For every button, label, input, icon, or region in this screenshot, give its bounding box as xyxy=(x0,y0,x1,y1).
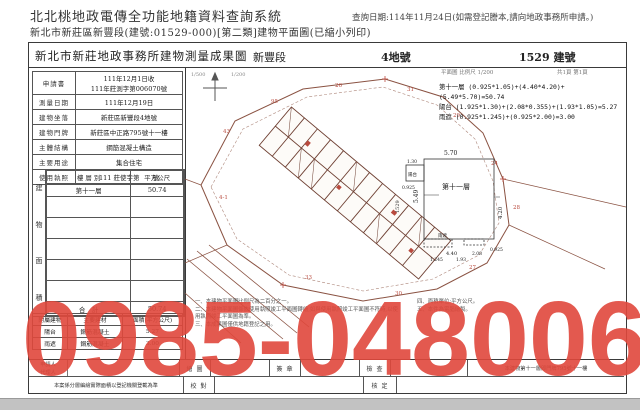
detail-building-no: 1529 xyxy=(395,200,401,213)
scale-label: 1/500 xyxy=(191,72,205,78)
formula-line: 陽台 (1.925*1.30)+(2.08*0.355)+(1.93*1.05)… xyxy=(439,103,625,113)
dim-left: 5.49 xyxy=(413,189,420,203)
dim-w3: 2.08 xyxy=(472,251,482,257)
system-title: 北北桃地政電傳全功能地籍資料查詢系統 xyxy=(30,6,282,25)
formula-line: 雨遮 (0.925*1.245)+(0.925*2.00)=3.00 xyxy=(439,113,625,123)
document-subtitle: 新北市新莊區新豐段(建號:01529-000)[第二類]建物平面圖(已縮小列印) xyxy=(30,24,371,39)
north-arrow-icon xyxy=(203,73,227,101)
dim-w4: 1.245 xyxy=(430,257,443,263)
parcel-number: 4地號 xyxy=(381,49,411,65)
query-date: 查詢日期:114年11月24日(如需登記謄本,請向地政事務所申請。) xyxy=(352,11,593,23)
canopy-label: 雨遮 xyxy=(438,232,447,239)
unit-detail-plan: 5.70 5.49 4.20 第十一層 1.30 陽台 0.925 雨遮 4.4… xyxy=(394,139,524,267)
info-field-table: 申請書 111年12月1日收111年莊測字第006070號 測量日期 111年1… xyxy=(32,71,183,185)
room-label: 第十一層 xyxy=(442,182,470,191)
field-label: 主要用途 xyxy=(33,155,76,170)
svg-text:31: 31 xyxy=(407,87,414,93)
field-value: 111年12月19日 xyxy=(76,95,183,110)
field-value: 鋼筋混凝土構造 xyxy=(76,140,183,155)
area-col-header: 平方公尺 xyxy=(131,171,184,184)
dim-w1: 4.40 xyxy=(446,251,457,257)
scan-edge-band xyxy=(0,398,640,410)
floor-row-area: 50.74 xyxy=(131,184,184,197)
svg-text:95: 95 xyxy=(271,99,278,105)
dim-w5: 0.925 xyxy=(402,185,415,191)
dim-balcony-width: 1.30 xyxy=(407,159,417,165)
svg-text:43: 43 xyxy=(223,129,230,135)
dim-w6: 0.925 xyxy=(490,247,503,253)
floor-row: 第十一層 xyxy=(47,184,131,197)
svg-text:4-1: 4-1 xyxy=(219,195,228,201)
field-value: 111年12月1日收111年莊測字第006070號 xyxy=(76,72,183,95)
svg-text:26: 26 xyxy=(335,83,342,89)
doc-title: 新北市新莊地政事務所建物測量成果圖 xyxy=(35,48,248,64)
field-label: 建物門牌 xyxy=(33,125,76,140)
formula-line: 第十一層 (0.925*1.05)+(4.40*4.20)+(5.49*5.70… xyxy=(439,83,625,103)
field-value: 集合住宅 xyxy=(76,155,183,170)
field-value: 新莊區中正路795號十一樓 xyxy=(76,125,183,140)
dim-top: 5.70 xyxy=(444,150,458,157)
field-label: 測量日期 xyxy=(33,95,76,110)
area-formulas: 第十一層 (0.925*1.05)+(4.40*4.20)+(5.49*5.70… xyxy=(439,83,625,123)
field-value: 新莊區新豐段4地號 xyxy=(76,110,183,125)
building-number: 1529 建號 xyxy=(519,49,575,65)
scale-label: 1/200 xyxy=(231,72,245,78)
land-section: 新豐段 xyxy=(253,49,286,65)
dim-w2: 1.93 xyxy=(456,257,466,263)
field-label: 主體結構 xyxy=(33,140,76,155)
screenshot-root: { "page": { "system_title": "北北桃地政電傳全功能地… xyxy=(0,0,640,409)
floor-col-header: 樓 層 別 xyxy=(47,171,131,184)
dim-right: 4.20 xyxy=(498,206,504,219)
field-label: 申請書 xyxy=(33,72,76,95)
phone-watermark: 0985-048006 xyxy=(22,286,628,392)
field-label: 建物坐落 xyxy=(33,110,76,125)
balcony-label: 陽台 xyxy=(408,171,417,178)
